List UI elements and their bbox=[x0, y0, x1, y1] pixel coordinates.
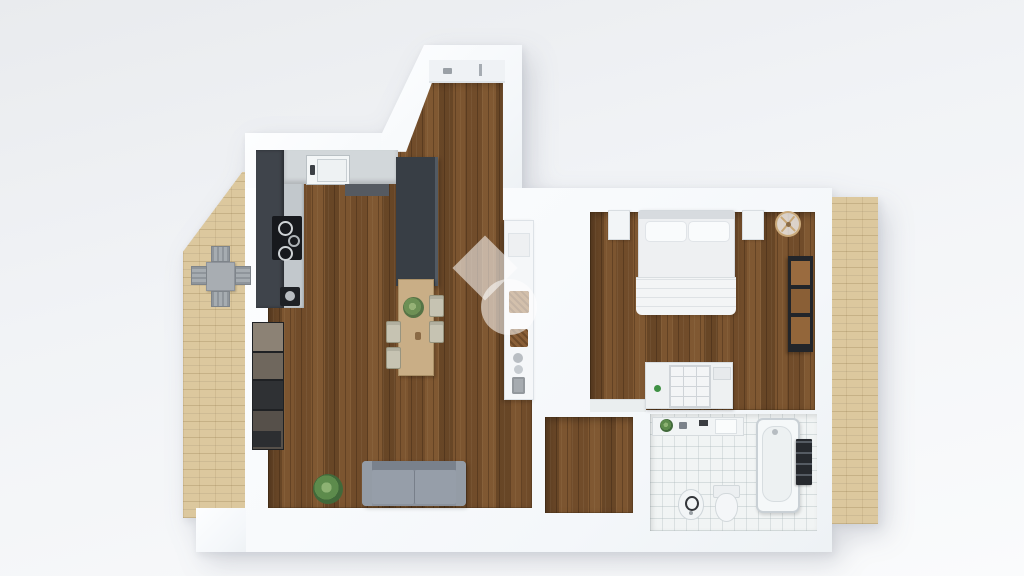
vase-1 bbox=[513, 353, 523, 363]
patio-chair-south[interactable] bbox=[211, 291, 230, 307]
toilet[interactable] bbox=[713, 485, 739, 521]
bedroom-bench[interactable] bbox=[590, 399, 646, 412]
dishwasher-front bbox=[345, 184, 389, 196]
sink-basin bbox=[317, 159, 347, 182]
shelving-shelf-1 bbox=[791, 261, 810, 285]
bedroom-wall-shelving[interactable] bbox=[788, 256, 813, 352]
dining-chair-1[interactable] bbox=[429, 295, 444, 317]
bed-headboard bbox=[639, 211, 734, 219]
dresser-side-item bbox=[713, 367, 731, 380]
patio-chair-west[interactable] bbox=[191, 266, 207, 285]
bidet-ring bbox=[685, 496, 699, 511]
coffee-machine-dial bbox=[285, 291, 295, 301]
toilet-bowl bbox=[715, 493, 738, 522]
ceiling-lamp[interactable] bbox=[775, 211, 801, 237]
dining-chair-2[interactable] bbox=[429, 321, 444, 343]
table-plant[interactable] bbox=[403, 297, 424, 318]
sofa-cushion-left bbox=[372, 470, 415, 504]
floor-plant[interactable] bbox=[313, 474, 343, 504]
dresser-green-knob bbox=[654, 385, 661, 392]
left-shelf-4[interactable] bbox=[252, 410, 284, 450]
burner-2 bbox=[288, 235, 300, 247]
vanity-dark-item bbox=[699, 420, 708, 426]
dining-chair-4[interactable] bbox=[386, 347, 401, 369]
bidet-dot bbox=[689, 511, 693, 515]
vanity-plant bbox=[660, 419, 673, 432]
bidet[interactable] bbox=[678, 489, 704, 520]
pillow-right bbox=[688, 221, 730, 242]
left-shelf-3[interactable] bbox=[252, 380, 284, 410]
sofa[interactable] bbox=[362, 461, 466, 506]
lamp-center bbox=[786, 222, 791, 227]
left-shelf-4-bottom bbox=[253, 431, 281, 447]
bay-window-sill bbox=[429, 60, 505, 83]
shelving-shelf-3 bbox=[791, 317, 810, 344]
floorplan-canvas bbox=[0, 0, 1024, 576]
patio-chair-east[interactable] bbox=[235, 266, 251, 285]
sofa-arm-left bbox=[362, 461, 372, 506]
radiator[interactable] bbox=[796, 439, 812, 485]
dresser[interactable] bbox=[645, 362, 733, 409]
bathtub[interactable] bbox=[756, 418, 800, 513]
left-shelf-1[interactable] bbox=[252, 322, 284, 352]
patio-table[interactable] bbox=[206, 262, 235, 291]
sill-item-line bbox=[479, 64, 482, 76]
vanity-faucet bbox=[679, 422, 687, 429]
sofa-arm-right bbox=[456, 461, 466, 506]
nightstand-left[interactable] bbox=[608, 210, 630, 240]
vanity-cabinet bbox=[715, 419, 737, 434]
shelving-shelf-2 bbox=[791, 289, 810, 313]
patio-ground bbox=[183, 172, 246, 518]
burner-3 bbox=[278, 246, 293, 261]
figurine bbox=[512, 377, 525, 394]
watermark-circle bbox=[481, 279, 537, 335]
bathtub-basin bbox=[762, 426, 792, 502]
bathtub-drain bbox=[772, 429, 778, 435]
vase-2 bbox=[514, 365, 523, 374]
coffee-machine[interactable] bbox=[280, 287, 300, 306]
bed-blanket bbox=[636, 277, 736, 315]
sofa-back bbox=[362, 461, 466, 470]
patio-chair-north[interactable] bbox=[211, 246, 230, 262]
right-paved-strip bbox=[830, 197, 878, 524]
dresser-drawers bbox=[669, 365, 711, 408]
pillow-left bbox=[645, 221, 687, 242]
nightstand-right[interactable] bbox=[742, 210, 764, 240]
sofa-cushion-right bbox=[415, 470, 456, 504]
left-shelf-2[interactable] bbox=[252, 352, 284, 380]
bookshelf-box bbox=[508, 233, 530, 257]
burner-1 bbox=[278, 221, 293, 236]
bed[interactable] bbox=[638, 210, 735, 313]
sink-faucet bbox=[310, 165, 315, 175]
kitchen-sink[interactable] bbox=[306, 155, 350, 185]
bathroom-vanity[interactable] bbox=[652, 417, 744, 436]
dining-chair-3[interactable] bbox=[386, 321, 401, 343]
wall-block-bottom-left bbox=[196, 508, 246, 552]
cooktop[interactable] bbox=[272, 216, 302, 260]
table-decor bbox=[415, 332, 421, 340]
kitchen-tall-column[interactable] bbox=[396, 157, 438, 286]
sill-item-handle bbox=[443, 68, 452, 74]
floor-hallway bbox=[545, 417, 633, 513]
